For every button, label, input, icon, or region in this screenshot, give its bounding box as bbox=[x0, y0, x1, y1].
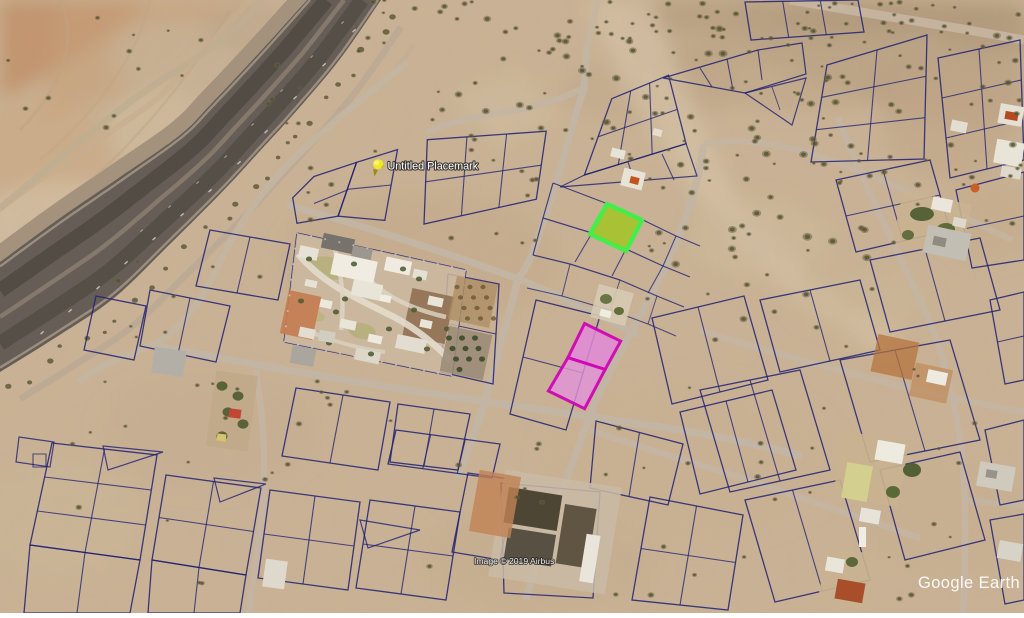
svg-text:Image © 2019 Airbus: Image © 2019 Airbus bbox=[474, 556, 554, 566]
svg-text:Google Earth: Google Earth bbox=[918, 574, 1020, 592]
svg-text:Untitled Placemark: Untitled Placemark bbox=[388, 161, 479, 173]
